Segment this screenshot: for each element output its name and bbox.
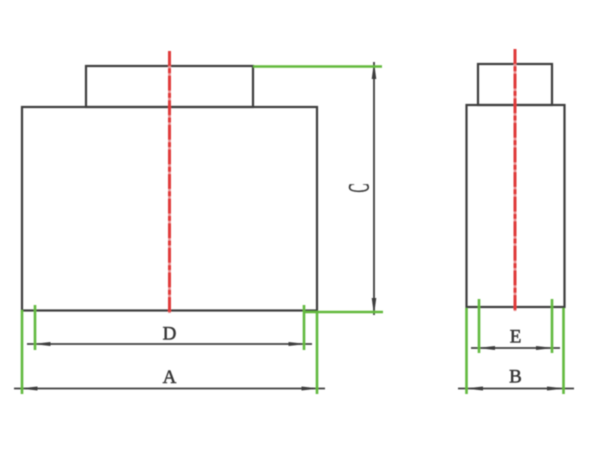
svg-text:B: B xyxy=(509,367,522,388)
svg-text:D: D xyxy=(163,324,177,345)
svg-text:C: C xyxy=(343,183,377,192)
svg-text:A: A xyxy=(163,367,177,388)
svg-text:E: E xyxy=(510,327,522,348)
